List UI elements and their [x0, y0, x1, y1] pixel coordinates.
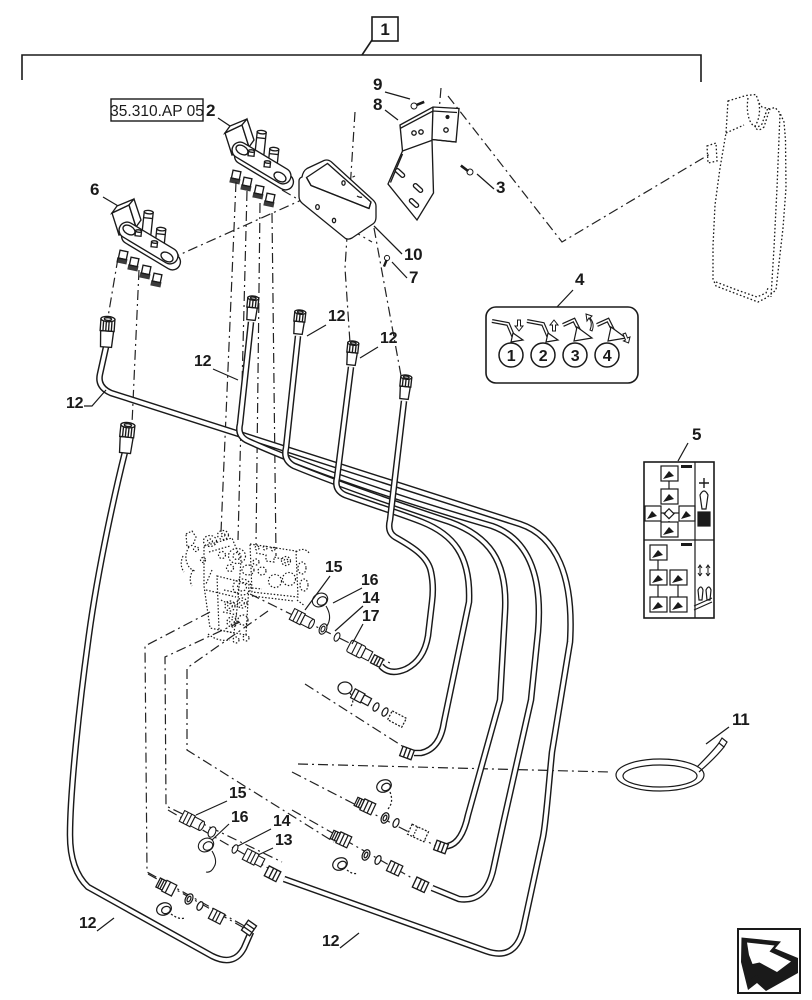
svg-text:16: 16	[361, 572, 379, 589]
svg-text:14: 14	[273, 813, 291, 830]
svg-text:12: 12	[66, 395, 84, 412]
svg-text:12: 12	[328, 308, 346, 325]
svg-text:17: 17	[362, 608, 380, 625]
svg-text:15: 15	[229, 785, 247, 802]
svg-text:8: 8	[373, 95, 382, 114]
svg-text:12: 12	[194, 353, 212, 370]
svg-text:13: 13	[275, 832, 293, 849]
svg-text:16: 16	[231, 809, 249, 826]
svg-text:15: 15	[325, 559, 343, 576]
svg-text:10: 10	[404, 245, 422, 264]
svg-text:6: 6	[90, 180, 99, 199]
svg-text:12: 12	[79, 915, 97, 932]
svg-text:35.310.AP 05: 35.310.AP 05	[110, 103, 204, 120]
svg-text:9: 9	[373, 75, 382, 94]
svg-text:14: 14	[362, 590, 380, 607]
svg-text:3: 3	[496, 178, 505, 197]
svg-text:5: 5	[692, 425, 701, 444]
svg-text:1: 1	[507, 348, 516, 365]
svg-text:2: 2	[206, 101, 215, 120]
svg-text:7: 7	[409, 268, 418, 287]
svg-text:1: 1	[380, 20, 389, 39]
svg-text:4: 4	[603, 348, 612, 365]
svg-text:4: 4	[575, 270, 585, 289]
svg-text:2: 2	[539, 348, 548, 365]
svg-text:12: 12	[380, 330, 398, 347]
svg-text:12: 12	[322, 933, 340, 950]
svg-text:11: 11	[732, 710, 749, 729]
svg-text:3: 3	[571, 348, 580, 365]
